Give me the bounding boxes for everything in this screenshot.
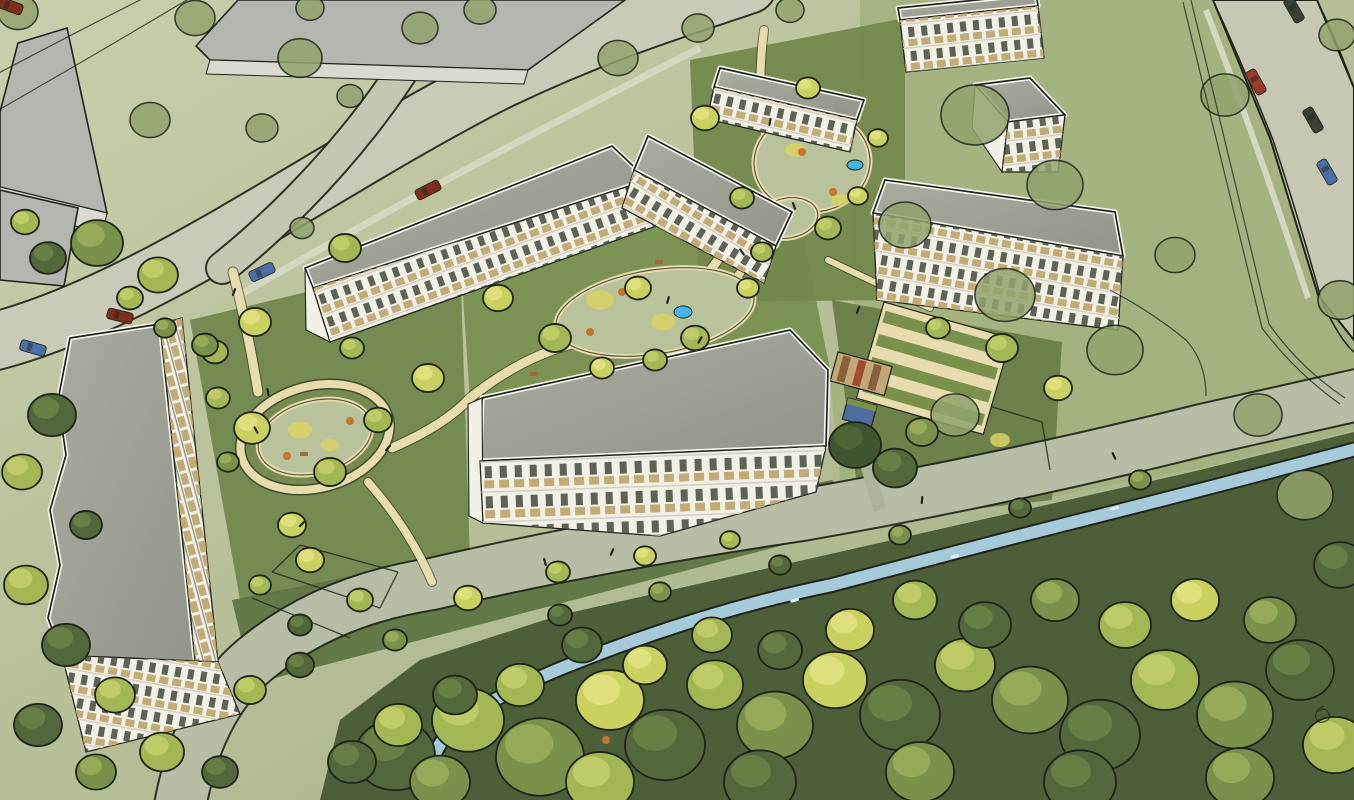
- tree-canopy: [278, 39, 322, 78]
- tree-canopy: [290, 217, 314, 238]
- tree: [1155, 237, 1195, 272]
- tree: [337, 85, 363, 108]
- tree-highlight: [299, 550, 314, 563]
- tree: [691, 106, 719, 131]
- tree-highlight: [332, 236, 350, 250]
- tree: [286, 653, 314, 678]
- tree-highlight: [645, 351, 658, 362]
- tree-highlight: [566, 630, 588, 648]
- tree-highlight: [289, 655, 304, 668]
- tree: [687, 660, 743, 709]
- tree: [992, 667, 1068, 734]
- tree-highlight: [342, 339, 355, 350]
- tree-canopy: [598, 40, 638, 75]
- tree: [959, 602, 1011, 648]
- tree-highlight: [722, 533, 733, 542]
- play-equipment-dot: [283, 452, 291, 460]
- tree-highlight: [1205, 687, 1247, 721]
- tree-highlight: [415, 366, 433, 380]
- tree-highlight: [753, 244, 765, 254]
- tree-highlight: [636, 548, 648, 558]
- tree-highlight: [928, 319, 941, 330]
- tree-canopy: [1318, 281, 1354, 320]
- pond: [674, 306, 692, 318]
- tree: [879, 202, 931, 248]
- tree: [623, 646, 667, 685]
- tree: [751, 242, 773, 261]
- tree-highlight: [144, 736, 168, 756]
- tree-canopy: [776, 0, 804, 22]
- tree: [643, 349, 667, 370]
- pedestrian: [267, 389, 268, 395]
- tree: [154, 318, 176, 337]
- tree-canopy: [1319, 19, 1354, 51]
- tree: [234, 412, 270, 444]
- tree: [1266, 640, 1334, 700]
- tree-highlight: [34, 245, 54, 261]
- tree-highlight: [818, 218, 832, 230]
- tree: [598, 40, 638, 75]
- tree-highlight: [868, 685, 912, 721]
- tree: [95, 677, 135, 712]
- tree: [347, 589, 373, 612]
- tree: [868, 129, 888, 147]
- tree: [1206, 748, 1274, 800]
- tree-highlight: [651, 584, 663, 594]
- tree-highlight: [19, 707, 45, 729]
- tree-highlight: [76, 224, 105, 247]
- tree-highlight: [694, 108, 709, 121]
- tree: [1244, 597, 1296, 643]
- tree-canopy: [464, 0, 496, 24]
- tree-highlight: [542, 326, 560, 340]
- tree: [290, 217, 314, 238]
- tree: [634, 546, 656, 565]
- tree-highlight: [633, 715, 677, 751]
- tree: [374, 704, 422, 746]
- tree: [4, 566, 48, 605]
- tree: [776, 0, 804, 22]
- tree-highlight: [831, 612, 857, 634]
- tree-highlight: [1047, 378, 1062, 391]
- sand-patch: [586, 290, 614, 310]
- tree-highlight: [1176, 582, 1202, 604]
- tree-highlight: [99, 680, 121, 698]
- tree: [329, 234, 361, 262]
- tree: [720, 531, 740, 549]
- tree-highlight: [731, 755, 771, 787]
- tree: [590, 357, 614, 378]
- tree-highlight: [696, 620, 718, 638]
- tree: [1087, 325, 1143, 374]
- tree-highlight: [909, 420, 927, 434]
- tree-highlight: [893, 747, 930, 778]
- tree-highlight: [333, 744, 359, 766]
- tree: [829, 422, 881, 468]
- tree-highlight: [964, 606, 993, 629]
- tree-highlight: [941, 643, 974, 670]
- bench: [300, 452, 308, 456]
- tree: [625, 277, 651, 300]
- tree: [893, 581, 937, 620]
- tree: [76, 754, 116, 789]
- tree-highlight: [47, 627, 73, 649]
- tree-highlight: [501, 667, 527, 689]
- tree: [71, 220, 123, 266]
- tree: [848, 187, 868, 205]
- tree: [986, 334, 1018, 362]
- tree: [1129, 470, 1151, 489]
- tree-highlight: [156, 320, 168, 330]
- sand-patch: [651, 314, 675, 331]
- tree-highlight: [693, 664, 724, 689]
- tree-canopy: [130, 102, 170, 137]
- tree: [682, 14, 714, 42]
- tree: [681, 326, 709, 351]
- tree-highlight: [592, 359, 605, 370]
- tree: [249, 575, 271, 594]
- tree-canopy: [1234, 394, 1282, 436]
- tree-highlight: [684, 328, 699, 341]
- tree-canopy: [337, 85, 363, 108]
- tree-highlight: [1249, 601, 1278, 624]
- sand-patch: [321, 439, 339, 452]
- tree-highlight: [505, 724, 553, 764]
- tree: [737, 692, 813, 759]
- tree: [562, 627, 602, 662]
- tree: [192, 334, 218, 357]
- tree-highlight: [627, 649, 651, 669]
- tree: [30, 242, 66, 274]
- tree-highlight: [142, 260, 164, 278]
- tree-canopy: [1155, 237, 1195, 272]
- aerial-illustration: [0, 0, 1354, 800]
- tree-highlight: [416, 760, 449, 787]
- tree-highlight: [208, 389, 221, 400]
- tree: [402, 12, 438, 44]
- tree: [239, 308, 271, 336]
- tree: [410, 756, 470, 800]
- tree: [1031, 579, 1079, 621]
- tree: [328, 741, 376, 783]
- tree-highlight: [1104, 606, 1133, 629]
- tree: [886, 742, 954, 800]
- tree-canopy: [975, 269, 1035, 322]
- tree-highlight: [834, 426, 863, 449]
- tree-highlight: [1000, 672, 1042, 706]
- sand-patch: [288, 422, 312, 439]
- tree-highlight: [367, 410, 382, 423]
- tree-highlight: [486, 287, 503, 301]
- tree-highlight: [242, 310, 260, 324]
- sand-patch: [990, 433, 1010, 447]
- tree: [483, 285, 513, 311]
- tree: [906, 418, 938, 446]
- tree: [206, 387, 230, 408]
- tree-highlight: [732, 189, 745, 200]
- tree: [28, 394, 76, 436]
- tree: [314, 458, 346, 486]
- tree-highlight: [385, 631, 398, 642]
- tree: [625, 710, 705, 780]
- tree: [796, 77, 820, 98]
- tree-highlight: [6, 457, 28, 475]
- tree-highlight: [317, 460, 335, 474]
- tree-highlight: [73, 513, 91, 527]
- tree-highlight: [891, 527, 903, 537]
- tree-highlight: [1131, 472, 1143, 482]
- tree-canopy: [682, 14, 714, 42]
- tree-highlight: [14, 212, 29, 225]
- tree: [175, 0, 215, 35]
- tree: [383, 629, 407, 650]
- play-equipment-dot: [602, 736, 610, 744]
- tree: [454, 586, 482, 611]
- tree-highlight: [1138, 655, 1175, 686]
- tree: [975, 269, 1035, 322]
- tree: [70, 511, 102, 539]
- tree-canopy: [246, 114, 278, 142]
- bench: [530, 372, 538, 376]
- tree-canopy: [1277, 470, 1333, 519]
- tree: [117, 287, 143, 310]
- pond: [847, 160, 863, 170]
- play-equipment-dot: [346, 417, 354, 425]
- tree-highlight: [798, 79, 811, 90]
- tree-highlight: [809, 656, 844, 685]
- tree: [941, 85, 1009, 145]
- tree: [11, 210, 39, 235]
- tree-highlight: [1068, 705, 1112, 741]
- tree-highlight: [1051, 755, 1091, 787]
- tree: [217, 452, 239, 471]
- tree: [296, 548, 324, 573]
- tree: [42, 624, 90, 666]
- tree: [1318, 281, 1354, 320]
- tree: [546, 561, 570, 582]
- tree-canopy: [175, 0, 215, 35]
- tree: [202, 756, 238, 788]
- tree: [873, 449, 917, 488]
- tree-canopy: [1087, 325, 1143, 374]
- tree: [889, 525, 911, 544]
- tree-highlight: [379, 707, 405, 729]
- tree-highlight: [1036, 582, 1062, 604]
- tree-highlight: [1273, 645, 1310, 676]
- tree-highlight: [1309, 721, 1344, 750]
- tree-highlight: [850, 189, 861, 198]
- tree: [737, 278, 759, 297]
- tree-highlight: [219, 454, 231, 464]
- tree-highlight: [290, 616, 303, 627]
- tree: [926, 317, 950, 338]
- tree: [826, 609, 874, 651]
- tree: [1099, 602, 1151, 648]
- tree-highlight: [120, 288, 134, 300]
- tree-highlight: [281, 515, 296, 528]
- tree-highlight: [739, 280, 751, 290]
- tree-highlight: [1011, 500, 1023, 510]
- play-equipment-dot: [798, 148, 806, 156]
- tree-highlight: [251, 577, 263, 587]
- tree: [1171, 579, 1219, 621]
- tree: [649, 582, 671, 601]
- tree-highlight: [573, 757, 610, 788]
- tree: [803, 652, 867, 708]
- bench: [655, 260, 663, 264]
- tree: [1044, 376, 1072, 401]
- play-equipment-dot: [829, 188, 837, 196]
- tree: [539, 324, 571, 352]
- tree-canopy: [1027, 160, 1083, 209]
- tree-highlight: [195, 335, 209, 347]
- tree-highlight: [877, 452, 901, 472]
- tree-highlight: [548, 563, 561, 574]
- tree-canopy: [879, 202, 931, 248]
- tree-highlight: [8, 569, 32, 589]
- tree: [1027, 160, 1083, 209]
- tree: [815, 217, 841, 240]
- tree-highlight: [1213, 753, 1250, 784]
- tree: [692, 617, 732, 652]
- tree: [130, 102, 170, 137]
- tree-highlight: [771, 557, 783, 567]
- tree-canopy: [402, 12, 438, 44]
- tree: [296, 0, 324, 20]
- tree: [1197, 682, 1273, 749]
- tree: [340, 337, 364, 358]
- tree-highlight: [628, 278, 642, 290]
- tree: [496, 664, 544, 706]
- tree: [288, 614, 312, 635]
- tree: [730, 187, 754, 208]
- tree: [1009, 498, 1031, 517]
- tree: [2, 454, 42, 489]
- tree: [464, 0, 496, 24]
- tree: [278, 39, 322, 78]
- tree: [433, 676, 477, 715]
- tree: [364, 408, 392, 433]
- play-equipment-dot: [586, 328, 594, 336]
- tree: [1234, 394, 1282, 436]
- tree: [1277, 470, 1333, 519]
- tree-canopy: [296, 0, 324, 20]
- tree-highlight: [897, 584, 921, 604]
- tree-highlight: [1319, 546, 1348, 569]
- tree: [769, 555, 791, 574]
- pedestrian: [544, 559, 546, 565]
- tree-highlight: [237, 678, 255, 692]
- tree-highlight: [989, 336, 1007, 350]
- tree-highlight: [80, 757, 102, 775]
- site-plan-sketch: [0, 0, 1354, 800]
- pedestrian: [922, 497, 923, 503]
- tree: [138, 257, 178, 292]
- tree-highlight: [206, 759, 226, 775]
- tree: [548, 604, 572, 625]
- tree: [412, 364, 444, 392]
- tree: [860, 680, 940, 750]
- tree-highlight: [745, 697, 787, 731]
- tree-highlight: [350, 590, 364, 602]
- tree-highlight: [33, 397, 59, 419]
- tree-highlight: [550, 606, 563, 617]
- pedestrian: [769, 119, 770, 125]
- tree-highlight: [437, 679, 461, 699]
- tree: [1201, 74, 1249, 116]
- tree: [758, 631, 802, 670]
- pedestrian: [667, 297, 669, 303]
- tree-highlight: [870, 131, 881, 140]
- tree: [140, 733, 184, 772]
- tree: [234, 676, 266, 704]
- tree-highlight: [762, 634, 786, 654]
- tree: [14, 704, 62, 746]
- tree-canopy: [941, 85, 1009, 145]
- tree-canopy: [1201, 74, 1249, 116]
- tree: [1131, 650, 1199, 710]
- tree: [246, 114, 278, 142]
- tree-highlight: [457, 588, 472, 601]
- tree: [1319, 19, 1354, 51]
- tree-highlight: [583, 675, 620, 706]
